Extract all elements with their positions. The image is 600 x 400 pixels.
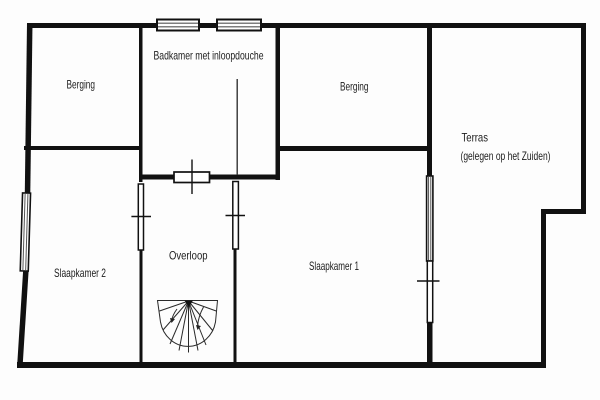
svg-text:Berging: Berging bbox=[340, 80, 369, 94]
svg-text:Overloop: Overloop bbox=[169, 249, 208, 263]
svg-text:Slaapkamer 2: Slaapkamer 2 bbox=[54, 266, 106, 280]
svg-text:Berging: Berging bbox=[67, 78, 96, 92]
svg-text:Terras: Terras bbox=[462, 131, 489, 145]
svg-text:Badkamer met inloopdouche: Badkamer met inloopdouche bbox=[154, 49, 264, 63]
svg-text:Slaapkamer 1: Slaapkamer 1 bbox=[309, 259, 359, 273]
svg-text:(gelegen op het Zuiden): (gelegen op het Zuiden) bbox=[461, 149, 551, 163]
